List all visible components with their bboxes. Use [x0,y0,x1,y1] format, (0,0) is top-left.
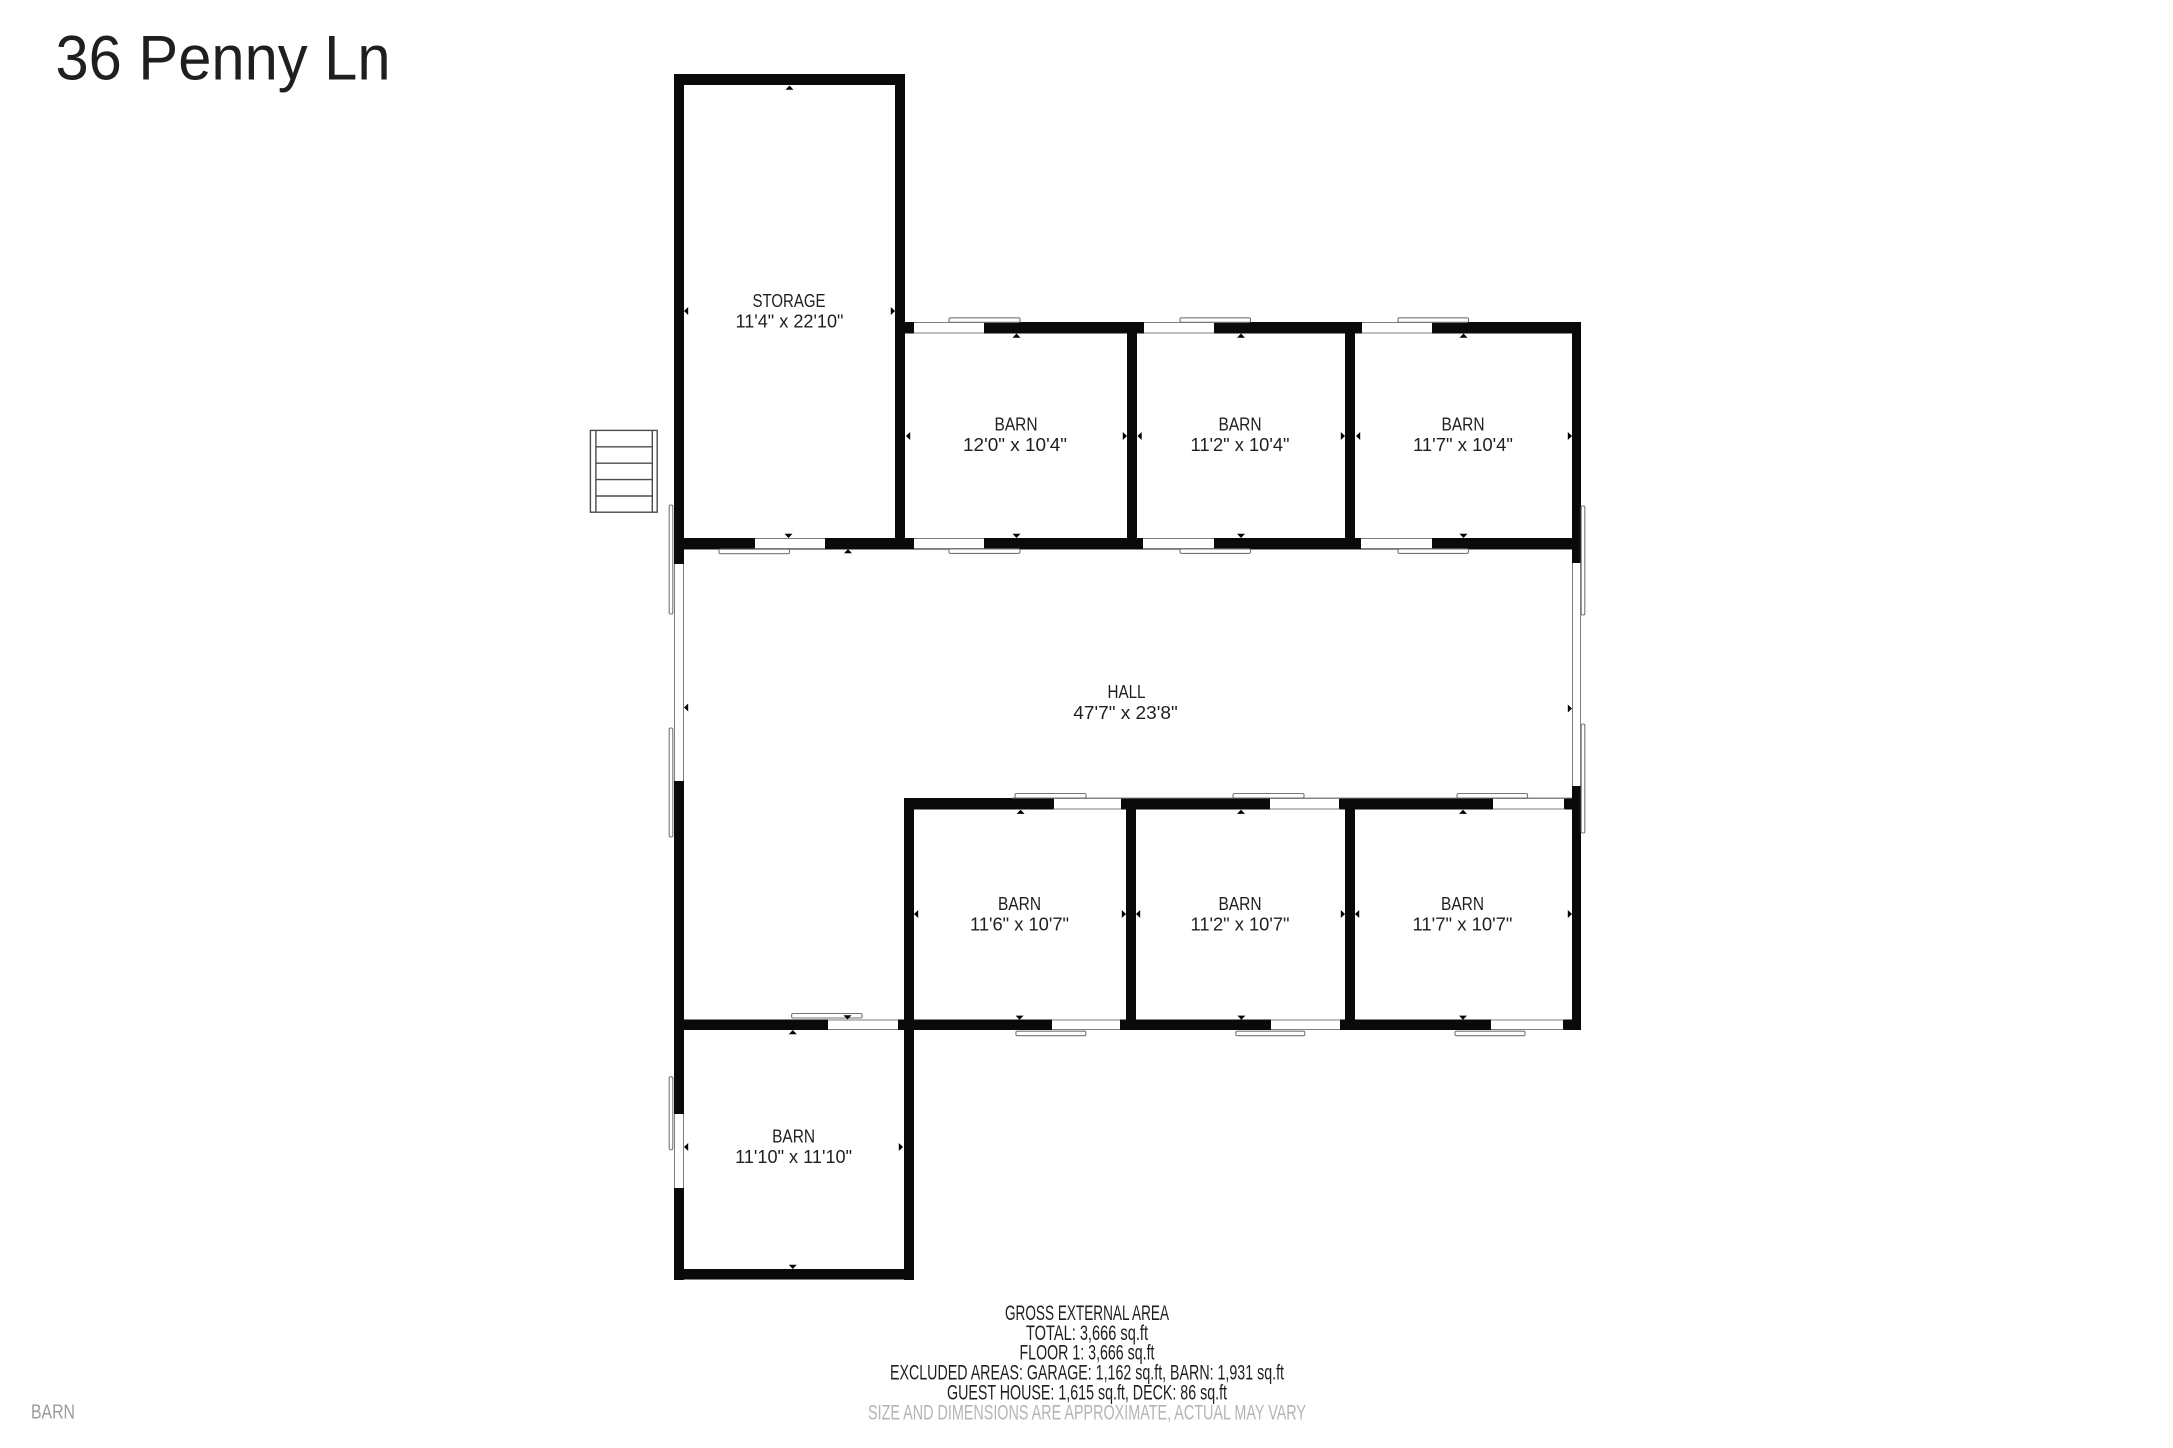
svg-text:BARN: BARN [1219,894,1262,914]
svg-text:11'7" x 10'7": 11'7" x 10'7" [1413,915,1513,935]
svg-text:BARN: BARN [1442,414,1485,434]
svg-text:11'7" x 10'4": 11'7" x 10'4" [1413,435,1513,455]
svg-text:12'0" x 10'4": 12'0" x 10'4" [963,435,1067,455]
svg-text:BARN: BARN [998,894,1041,914]
svg-text:SIZE AND DIMENSIONS ARE APPROX: SIZE AND DIMENSIONS ARE APPROXIMATE, ACT… [868,1400,1306,1424]
svg-text:36 Penny Ln: 36 Penny Ln [56,24,391,94]
svg-text:HALL: HALL [1108,682,1146,702]
svg-text:47'7" x 23'8": 47'7" x 23'8" [1073,703,1177,723]
svg-text:BARN: BARN [1219,414,1262,434]
svg-text:11'2" x 10'4": 11'2" x 10'4" [1191,435,1290,455]
svg-text:BARN: BARN [772,1126,815,1146]
svg-text:11'2" x 10'7": 11'2" x 10'7" [1191,915,1290,935]
svg-text:11'6" x 10'7": 11'6" x 10'7" [970,915,1069,935]
svg-text:BARN: BARN [995,414,1038,434]
svg-text:11'4" x 22'10": 11'4" x 22'10" [736,312,844,332]
svg-text:11'10" x 11'10": 11'10" x 11'10" [735,1147,852,1167]
svg-text:STORAGE: STORAGE [753,291,826,311]
svg-text:BARN: BARN [1441,894,1484,914]
svg-text:BARN: BARN [31,1401,75,1424]
